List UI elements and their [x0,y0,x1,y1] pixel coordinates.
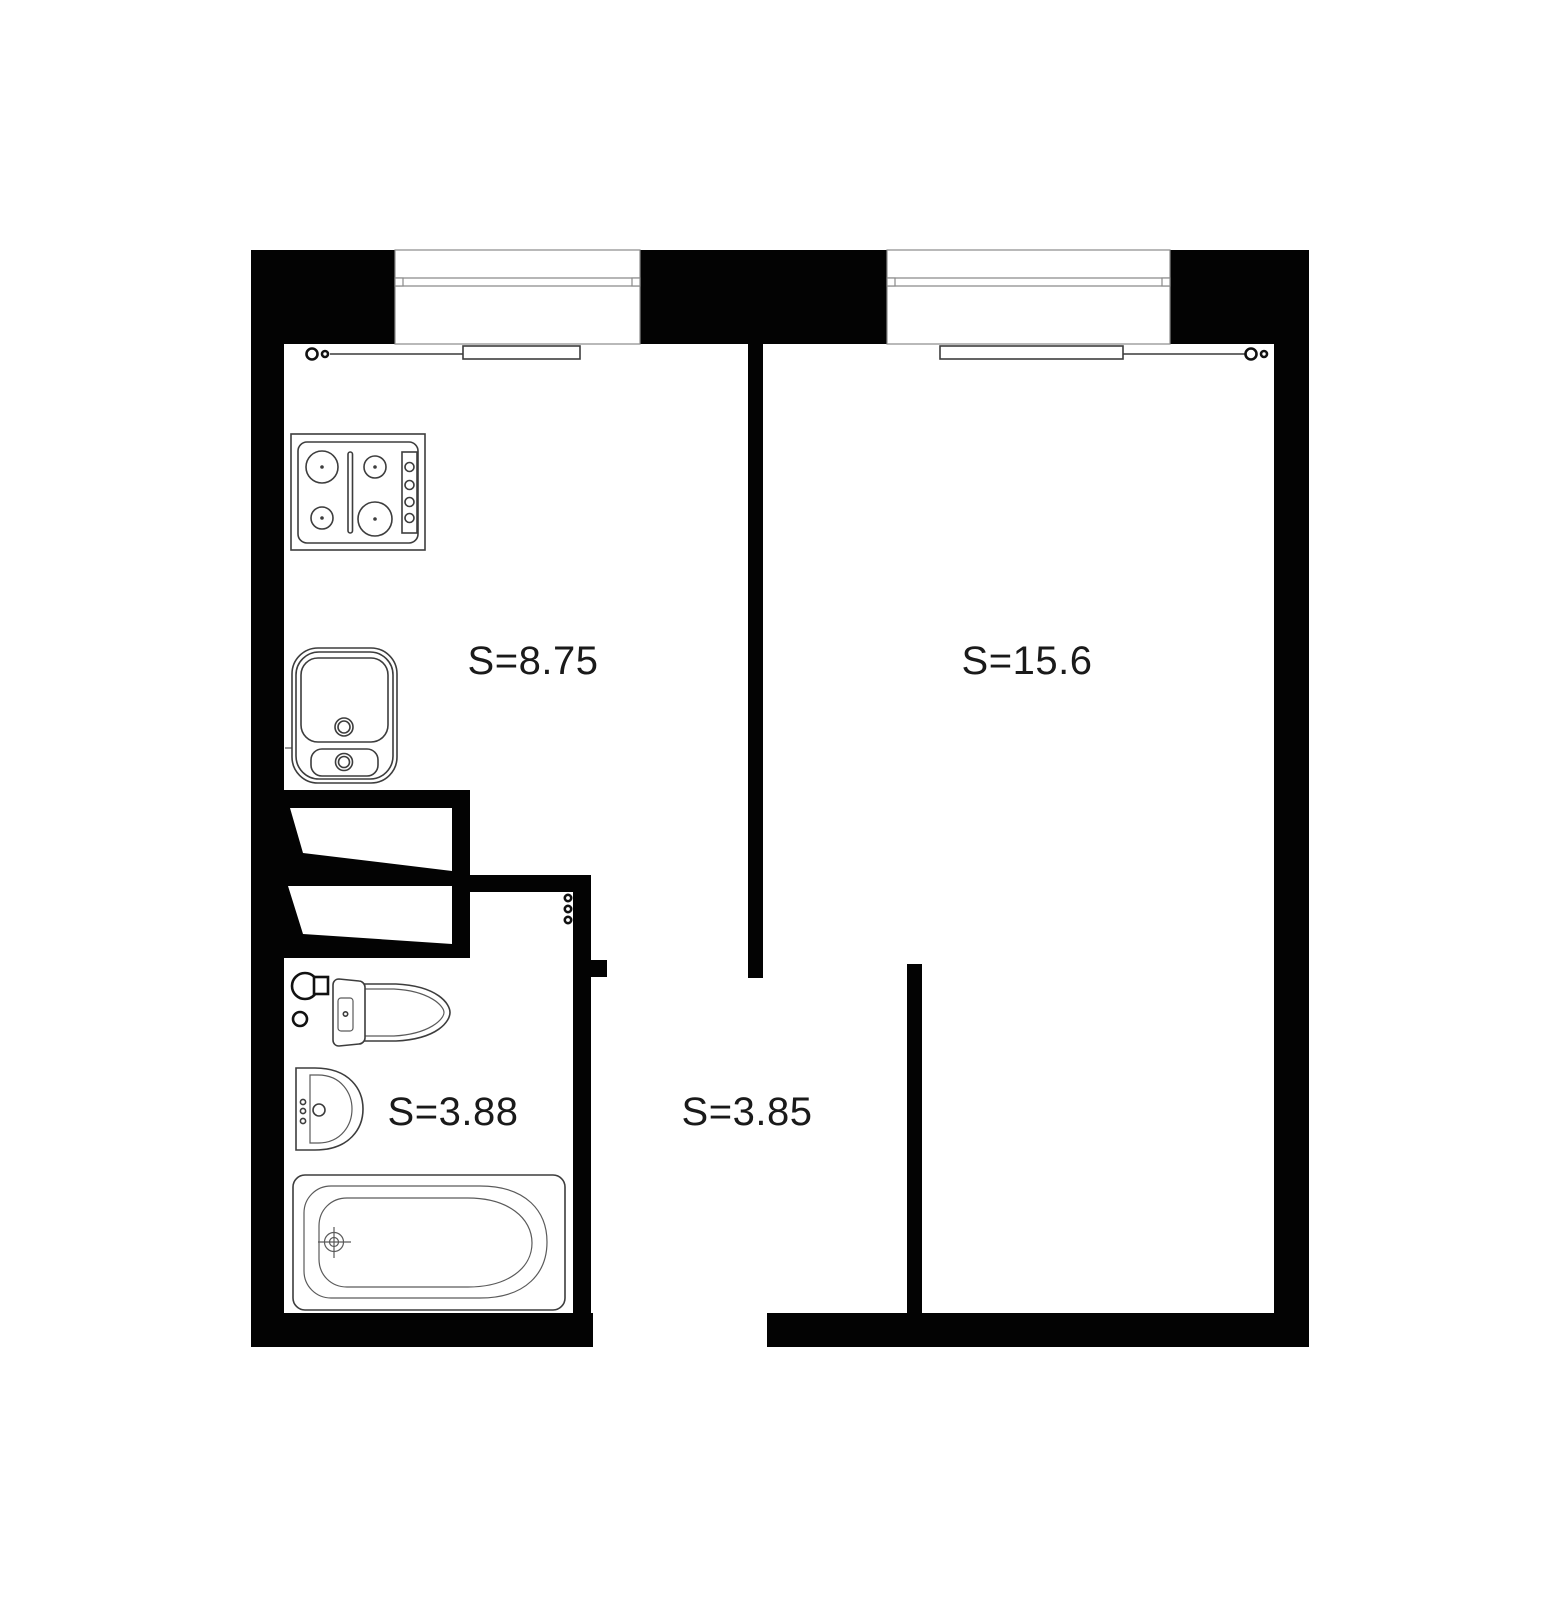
washbasin-icon [296,1068,363,1150]
wall-bathroom-right [573,892,591,1313]
wall-kitchen-living-divider [748,344,763,978]
bathtub-icon [293,1175,565,1310]
wall-top-right-block [1170,250,1309,344]
floor-plan: S=8.75 S=15.6 S=3.88 S=3.85 [0,0,1560,1600]
window-icon [395,250,640,344]
kitchen-sink-icon [285,648,397,783]
wall-top-mid-pier [640,250,887,344]
floor-plan-page: S=8.75 S=15.6 S=3.88 S=3.85 [0,0,1560,1600]
wall-bottom-left-segment [251,1313,593,1347]
hinge-dots-icon [565,895,571,923]
radiator-living-icon [940,346,1267,360]
stove-icon [291,434,425,550]
living-room-area-label: S=15.6 [962,639,1093,683]
wall-door-jamb-stub [591,960,607,977]
wall-bottom-right-segment [767,1313,1309,1347]
window-kitchen [395,250,640,344]
hallway-area-label: S=3.85 [682,1090,813,1134]
wall-bathroom-top-band [470,875,591,892]
wall-right-outer [1274,344,1309,1347]
toilet-icon [333,979,450,1046]
window-living [887,250,1170,344]
wall-hall-living-divider [907,964,922,1313]
radiator-kitchen-icon [307,346,581,360]
wall-top-left-block [251,250,395,344]
kitchen-area-label: S=8.75 [468,639,599,683]
water-heater-icon [292,973,328,1026]
window-icon [887,250,1170,344]
bathroom-area-label: S=3.88 [388,1090,519,1134]
